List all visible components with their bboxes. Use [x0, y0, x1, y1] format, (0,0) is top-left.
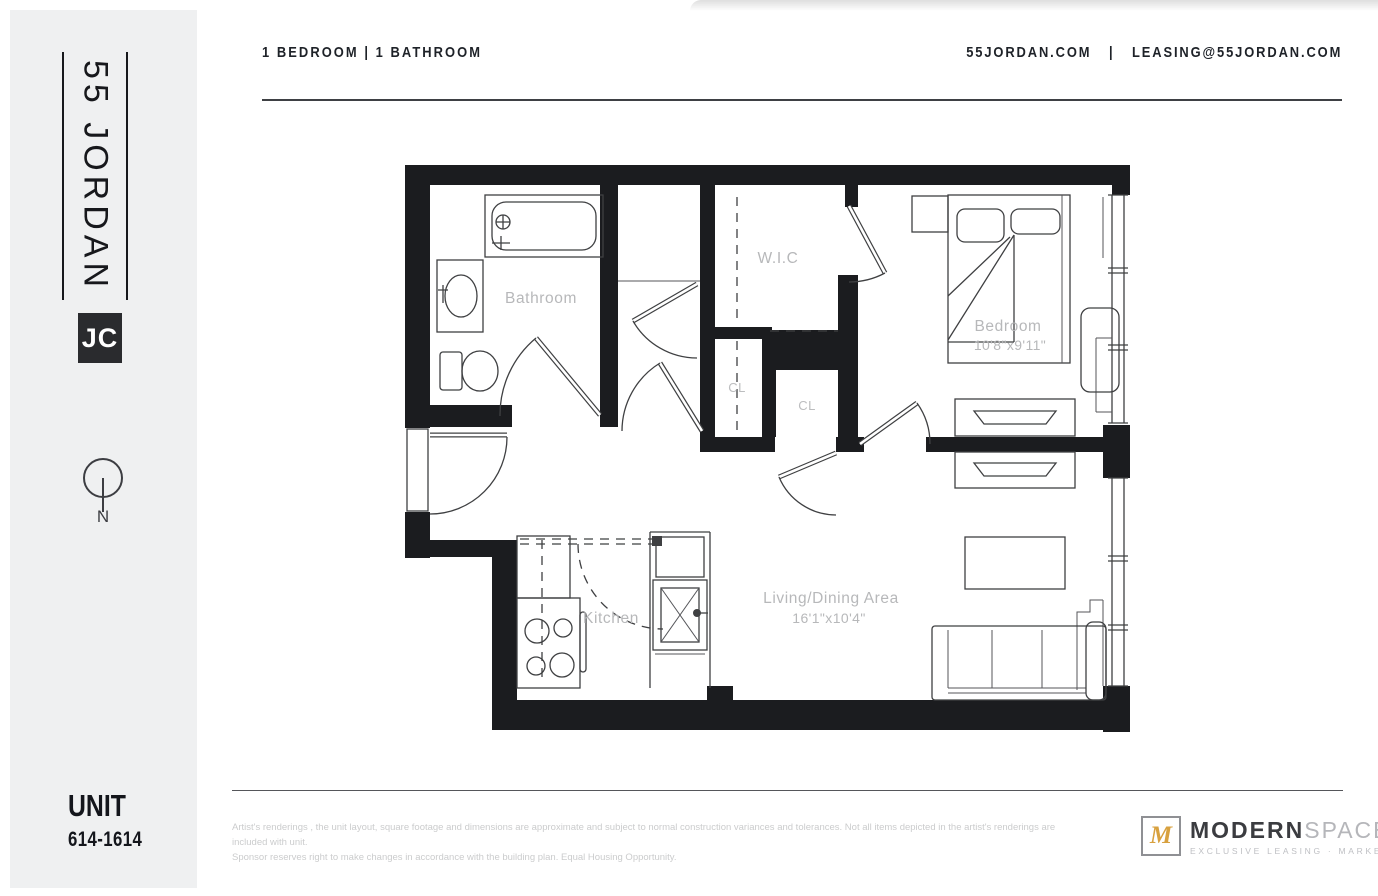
sink-column	[650, 532, 710, 688]
closet-cl2: CL	[779, 398, 836, 515]
sink	[445, 275, 477, 317]
toilet-tank	[440, 352, 462, 390]
floorplan-drawing: Bathroom W.I.C CL CL	[0, 0, 1378, 896]
wic-label: W.I.C	[758, 250, 799, 267]
bedroom: Bedroom 10'8"x9'11"	[860, 195, 1075, 444]
vanity	[437, 260, 483, 332]
living-dimensions: 16'1"x10'4"	[792, 610, 865, 626]
media-console	[955, 452, 1075, 488]
walk-in-closet: W.I.C	[737, 197, 885, 331]
nightstand	[912, 196, 948, 232]
logo-tagline: EXCLUSIVE LEASING · MARKETING	[1190, 846, 1378, 856]
bathroom-label: Bathroom	[505, 290, 577, 307]
disclaimer-line2: Sponsor reserves right to make changes i…	[232, 850, 1072, 865]
bedroom-label: Bedroom	[974, 318, 1041, 335]
entry-door	[407, 429, 507, 514]
counter	[517, 536, 570, 598]
dresser-bedroom	[955, 399, 1075, 436]
cl1-label: CL	[728, 380, 746, 395]
disclaimer-line1: Artist's renderings , the unit layout, s…	[232, 820, 1072, 850]
upper-cabinet	[656, 537, 704, 577]
kitchen-label: Kitchen	[583, 610, 639, 627]
pillow	[957, 209, 1004, 242]
stove	[517, 598, 580, 688]
closet-cl1: CL	[728, 341, 746, 433]
hall-closet	[618, 281, 700, 358]
cl2-label: CL	[798, 398, 816, 413]
coffee-table	[965, 537, 1065, 589]
bathroom: Bathroom	[437, 195, 603, 416]
living-label: Living/Dining Area	[763, 590, 899, 607]
kitchen-door-dashes	[520, 539, 652, 544]
modern-spaces-monogram: M	[1141, 816, 1181, 856]
logo-name-bold: MODERN	[1190, 817, 1304, 843]
sofa	[932, 626, 1106, 700]
pillow	[1011, 209, 1060, 234]
kitchen: Kitchen	[517, 532, 710, 688]
bedroom-dimensions: 10'8"x9'11"	[974, 337, 1046, 353]
corridor-door	[622, 363, 702, 431]
bathroom-door-arc	[500, 338, 536, 416]
modern-spaces-logo: MODERNSPACES EXCLUSIVE LEASING · MARKETI…	[1190, 817, 1378, 856]
monogram-letter: M	[1150, 822, 1172, 850]
footer-rule	[232, 790, 1343, 791]
living-dining: Living/Dining Area 16'1"x10'4"	[763, 452, 1106, 700]
disclaimer: Artist's renderings , the unit layout, s…	[232, 820, 1072, 865]
toilet-bowl	[462, 351, 498, 391]
logo-name-light: SPACES	[1304, 817, 1378, 843]
